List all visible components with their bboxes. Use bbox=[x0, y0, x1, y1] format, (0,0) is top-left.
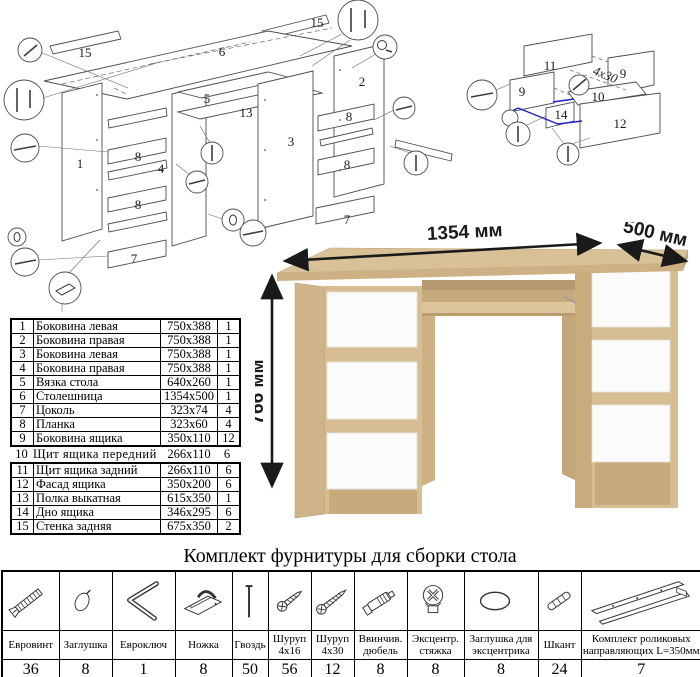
part-label: 1 bbox=[77, 156, 84, 171]
part-label: 8 bbox=[135, 149, 142, 164]
part-label: 3 bbox=[288, 134, 295, 149]
part-qty: 4 bbox=[218, 404, 241, 418]
niche-right-wall bbox=[562, 316, 575, 480]
cap-icon bbox=[60, 574, 106, 628]
part-num: 3 bbox=[11, 348, 34, 362]
drawer-front bbox=[327, 433, 417, 489]
part-size: 266x110 bbox=[161, 447, 217, 462]
side-panel-shape bbox=[258, 71, 313, 229]
hardware-name: Шкант bbox=[538, 631, 581, 660]
part-label: 5 bbox=[204, 91, 211, 106]
part-num: 10 bbox=[10, 447, 33, 462]
part-size: 350x200 bbox=[161, 478, 218, 492]
part-row: 8Планка323x604 bbox=[11, 418, 240, 432]
keyboard-tray-edge bbox=[422, 313, 575, 316]
part-name: Цоколь bbox=[34, 404, 161, 418]
hardware-qty: 12 bbox=[311, 660, 354, 677]
parts-table-upper: 1Боковина левая750x3881 2Боковина правая… bbox=[10, 318, 241, 447]
part-label: 9 bbox=[620, 66, 627, 81]
drawer-side-shape bbox=[510, 72, 554, 112]
part-qty: 6 bbox=[218, 478, 241, 492]
part-size: 640x260 bbox=[161, 376, 218, 390]
part-row: 9Боковина ящика350x11012 bbox=[11, 432, 240, 447]
desk-right-inner-side bbox=[575, 268, 592, 508]
part-size: 346x295 bbox=[161, 506, 218, 520]
threaded-dowel-icon bbox=[355, 574, 403, 628]
desk-left-side bbox=[295, 283, 325, 518]
slide-rail-shape bbox=[108, 212, 167, 232]
hardware-qty: 8 bbox=[464, 660, 538, 677]
part-name: Боковина левая bbox=[34, 319, 161, 334]
drawer-front bbox=[327, 292, 417, 347]
part-size: 750x388 bbox=[161, 348, 218, 362]
part-row: 13Полка выкатная615x3501 bbox=[11, 492, 240, 506]
hardware-name: Ввинчив. дюбель bbox=[354, 631, 407, 660]
part-name: Планка bbox=[34, 418, 161, 432]
part-size: 1354x500 bbox=[161, 390, 218, 404]
drawer-front bbox=[592, 405, 670, 462]
drawer-back-shape bbox=[524, 34, 592, 76]
part-num: 7 bbox=[11, 404, 34, 418]
part-name: Полка выкатная bbox=[34, 492, 161, 506]
part-qty: 1 bbox=[218, 376, 241, 390]
hardware-qty: 8 bbox=[407, 660, 464, 677]
part-qty: 2 bbox=[218, 520, 241, 535]
part-num: 5 bbox=[11, 376, 34, 390]
part-size: 750x388 bbox=[161, 334, 218, 348]
part-num: 6 bbox=[11, 390, 34, 404]
part-qty: 6 bbox=[218, 463, 241, 478]
part-row: 7Цоколь323x744 bbox=[11, 404, 240, 418]
desk-left-plinth bbox=[329, 490, 417, 514]
part-qty: 1 bbox=[218, 334, 241, 348]
hardware-qty: 8 bbox=[354, 660, 407, 677]
part-num: 9 bbox=[11, 432, 34, 447]
cam-cap-icon bbox=[465, 574, 525, 628]
part-num: 11 bbox=[11, 463, 34, 478]
part-row: 6Столешница1354x5001 bbox=[11, 390, 240, 404]
part-qty: 6 bbox=[217, 447, 237, 462]
confirmat-screw-icon bbox=[3, 574, 53, 628]
part-label: 12 bbox=[614, 116, 627, 131]
hardware-name: Шуруп 4x16 bbox=[268, 631, 311, 660]
part-num: 2 bbox=[11, 334, 34, 348]
callout-circle bbox=[4, 80, 44, 120]
slide-rail-shape bbox=[108, 108, 167, 128]
hardware-qty: 7 bbox=[581, 660, 700, 677]
part-qty: 1 bbox=[218, 492, 241, 506]
part-label: 13 bbox=[240, 105, 253, 120]
hardware-name: Заглушка для эксцентрика bbox=[464, 631, 538, 660]
hardware-qty: 1 bbox=[112, 660, 175, 677]
hardware-table: Евровинт Заглушка Евроключ Ножка Гвоздь … bbox=[1, 570, 700, 677]
part-size: 266x110 bbox=[161, 463, 218, 478]
width-dimension-label: 1354 мм bbox=[426, 222, 503, 245]
screw-icon bbox=[312, 574, 352, 628]
hardware-name: Гвоздь bbox=[232, 631, 268, 660]
part-row: 12Фасад ящика350x2006 bbox=[11, 478, 240, 492]
part-qty: 6 bbox=[218, 506, 241, 520]
part-qty: 1 bbox=[218, 362, 241, 376]
callout-circle bbox=[49, 272, 81, 304]
part-name: Вязка стола bbox=[34, 376, 161, 390]
wood-dowel-icon bbox=[539, 574, 579, 628]
hardware-qty: 8 bbox=[175, 660, 232, 677]
hardware-qty: 8 bbox=[59, 660, 112, 677]
niche-shadow bbox=[422, 280, 575, 290]
part-row: 4Боковина правая750x3881 bbox=[11, 362, 240, 376]
part-size: 323x74 bbox=[161, 404, 218, 418]
hardware-name-row: Евровинт Заглушка Евроключ Ножка Гвоздь … bbox=[2, 631, 700, 660]
part-size: 323x60 bbox=[161, 418, 218, 432]
screw-icon bbox=[269, 574, 309, 628]
part-name: Боковина правая bbox=[34, 362, 161, 376]
part-name: Стенка задняя bbox=[34, 520, 161, 535]
part-size: 615x350 bbox=[161, 492, 218, 506]
part-qty: 12 bbox=[218, 432, 241, 447]
hardware-name: Заглушка bbox=[59, 631, 112, 660]
part-label: 4 bbox=[158, 161, 165, 176]
hardware-qty: 36 bbox=[2, 660, 59, 677]
hardware-name: Комплект роликовых направляющих L=350мм bbox=[581, 631, 700, 660]
part-row: 11Щит ящика задний266x1106 bbox=[11, 463, 240, 478]
part-qty: 1 bbox=[218, 319, 241, 334]
callout-circle bbox=[373, 35, 397, 59]
part-name: Фасад ящика bbox=[34, 478, 161, 492]
roller-slides-icon bbox=[582, 574, 700, 628]
hardware-qty: 24 bbox=[538, 660, 581, 677]
drawer-front bbox=[327, 362, 417, 419]
part-row: 5Вязка стола640x2601 bbox=[11, 376, 240, 390]
foot-icon bbox=[176, 574, 228, 628]
hardware-icon-row bbox=[2, 571, 700, 631]
part-name: Дно ящика bbox=[34, 506, 161, 520]
callout-circle bbox=[8, 228, 26, 246]
part-num: 15 bbox=[11, 520, 34, 535]
hardware-name: Эксцентр. стяжка bbox=[407, 631, 464, 660]
part-row: 3Боковина левая750x3881 bbox=[11, 348, 240, 362]
hex-key-icon bbox=[113, 574, 169, 628]
hardware-kit-title: Комплект фурнитуры для сборки стола bbox=[0, 545, 700, 568]
part-label: 7 bbox=[131, 251, 138, 266]
part-size: 350x110 bbox=[161, 432, 218, 447]
drawer-front bbox=[592, 340, 670, 392]
part-label: 15 bbox=[79, 45, 92, 60]
part-qty: 4 bbox=[218, 418, 241, 432]
part-row: 14Дно ящика346x2956 bbox=[11, 506, 240, 520]
parts-table-lower: 11Щит ящика задний266x1106 12Фасад ящика… bbox=[10, 462, 241, 535]
part-name: Столешница bbox=[34, 390, 161, 404]
part-num: 1 bbox=[11, 319, 34, 334]
part-size: 675x350 bbox=[161, 520, 218, 535]
part-label: 15 bbox=[311, 15, 324, 30]
hardware-qty: 56 bbox=[268, 660, 311, 677]
part-label: 6 bbox=[219, 44, 226, 59]
part-num: 4 bbox=[11, 362, 34, 376]
keyboard-tray bbox=[422, 302, 575, 313]
part-row: 2Боковина правая750x3881 bbox=[11, 334, 240, 348]
height-dimension-label: 766 мм bbox=[255, 359, 268, 424]
hardware-name: Шуруп 4x30 bbox=[311, 631, 354, 660]
hardware-qty-row: 36 8 1 8 50 56 12 8 8 8 24 7 bbox=[2, 660, 700, 677]
hardware-name: Ножка bbox=[175, 631, 232, 660]
part-size: 750x388 bbox=[161, 319, 218, 334]
part-label: 8 bbox=[346, 109, 353, 124]
assembly-diagram-drawer: 4x30 11 9 9 10 14 12 bbox=[440, 0, 700, 205]
part-label: 8 bbox=[344, 157, 351, 172]
hardware-name: Евровинт bbox=[2, 631, 59, 660]
part-label: 9 bbox=[519, 84, 526, 99]
part-size: 750x388 bbox=[161, 362, 218, 376]
part-num: 13 bbox=[11, 492, 34, 506]
part-num: 14 bbox=[11, 506, 34, 520]
part-label: 14 bbox=[555, 107, 569, 122]
assembly-instruction-sheet: 15 6 15 5 13 2 3 1 8 4 8 7 8 8 7 bbox=[0, 0, 700, 677]
part-name: Щит ящика передний bbox=[33, 447, 161, 462]
niche-left-wall bbox=[422, 316, 435, 486]
hardware-name: Евроключ bbox=[112, 631, 175, 660]
desk-render: 1354 мм 500 мм 766 мм bbox=[255, 222, 700, 545]
part-qty: 1 bbox=[218, 390, 241, 404]
part-name: Боковина правая bbox=[34, 334, 161, 348]
part-name: Щит ящика задний bbox=[34, 463, 161, 478]
part-qty: 1 bbox=[218, 348, 241, 362]
part-name: Боковина ящика bbox=[34, 432, 161, 447]
part-row: 15Стенка задняя675x3502 bbox=[11, 520, 240, 535]
drawer-front bbox=[592, 270, 670, 327]
part-row: 1Боковина левая750x3881 bbox=[11, 319, 240, 334]
part-label: 2 bbox=[359, 74, 366, 89]
part-num: 12 bbox=[11, 478, 34, 492]
nail-icon bbox=[233, 574, 265, 628]
part-name: Боковина левая bbox=[34, 348, 161, 362]
part-label: 11 bbox=[544, 58, 557, 73]
parts-table: 1Боковина левая750x3881 2Боковина правая… bbox=[10, 318, 241, 535]
part-row: 10 Щит ящика передний 266x110 6 bbox=[10, 447, 241, 462]
callout-circle bbox=[338, 0, 378, 40]
part-label: 8 bbox=[135, 197, 142, 212]
part-label: 10 bbox=[592, 89, 605, 104]
part-num: 8 bbox=[11, 418, 34, 432]
hardware-qty: 50 bbox=[232, 660, 268, 677]
desk-right-plinth bbox=[595, 462, 670, 505]
eccentric-cam-icon bbox=[408, 574, 458, 628]
